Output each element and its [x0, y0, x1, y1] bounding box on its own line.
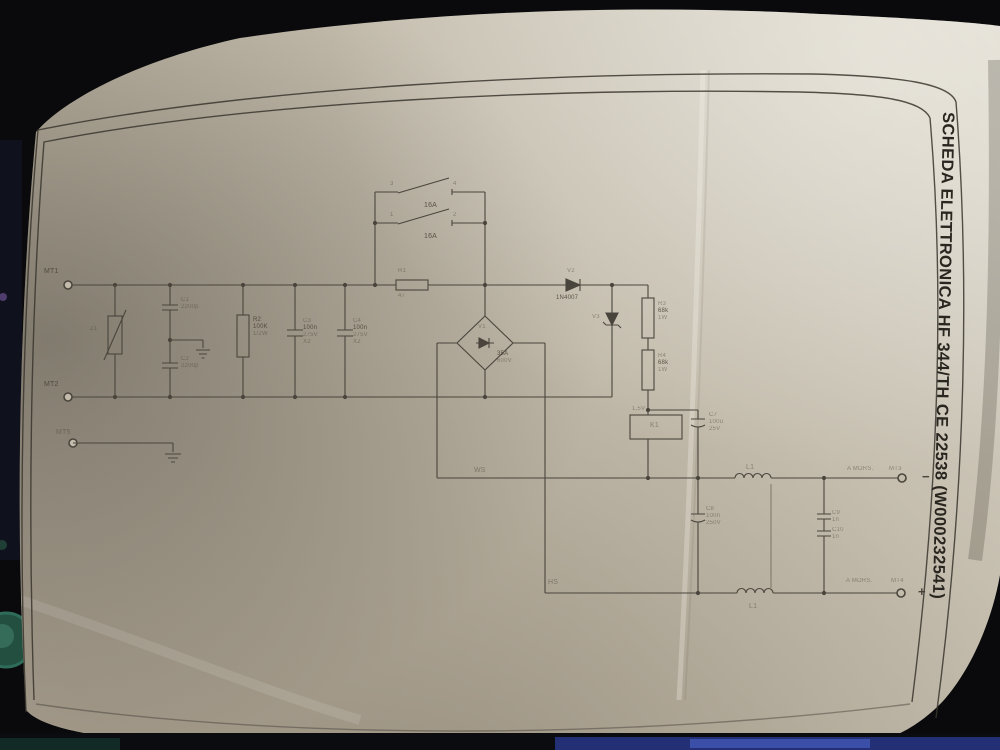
- label-mt5: MT5: [56, 429, 71, 436]
- label-r2: R2: [253, 317, 261, 323]
- teal-strip: [0, 738, 120, 750]
- terminal-mt4: [897, 589, 905, 597]
- label-s1b-contact-1: 1: [390, 212, 394, 218]
- label-c4-voltage: 275V: [353, 332, 368, 338]
- schematic-drawing: [0, 0, 1000, 750]
- label-c2-value: 2200p: [181, 363, 199, 369]
- label-mt2: MT2: [44, 381, 59, 388]
- label-ws: WS: [474, 467, 486, 474]
- paper-shading: [0, 0, 1000, 750]
- terminal-mt1: [64, 281, 72, 289]
- label-l1-top: L1: [746, 464, 754, 471]
- label-c4: C4: [353, 318, 361, 324]
- label-hs: HS: [548, 579, 558, 586]
- label-output-neg-note: A MORS.: [847, 466, 873, 472]
- label-c9: C9: [832, 510, 840, 516]
- label-c8-value: 100n: [706, 513, 720, 519]
- label-c9-value: 1n: [832, 517, 839, 523]
- dark-table-edge: [0, 140, 22, 560]
- label-r2-power: 1/2W: [253, 331, 268, 337]
- label-s1b-rating: 16A: [424, 233, 437, 240]
- label-v3: V3: [592, 314, 600, 320]
- output-plus-sign: +: [918, 585, 926, 598]
- label-output-pos-note: A MORS.: [846, 578, 872, 584]
- label-c1-value: 2200p: [181, 304, 199, 310]
- label-r1: R1: [398, 268, 406, 274]
- label-r2-value: 100K: [253, 324, 268, 330]
- label-r1-value: 47: [398, 293, 405, 299]
- label-output-pos-terminal: MT4: [891, 578, 904, 584]
- label-c10: C10: [832, 527, 844, 533]
- label-z1: Z1: [90, 326, 97, 332]
- label-v1-rating: 35A: [497, 351, 508, 357]
- label-s1a-rating: 16A: [424, 202, 437, 209]
- label-c7: C7: [709, 412, 717, 418]
- label-c3-voltage: 275V: [303, 332, 318, 338]
- output-minus-sign: −: [922, 470, 930, 483]
- label-l1-bottom: L1: [749, 603, 757, 610]
- label-c8: C8: [706, 506, 714, 512]
- label-c4-value: 100n: [353, 325, 367, 331]
- label-c3: C3: [303, 318, 311, 324]
- label-r3-power: 1W: [658, 315, 667, 321]
- blue-strip-light: [690, 739, 870, 748]
- label-v2-part: 1N4007: [556, 295, 578, 301]
- label-c1: C1: [181, 297, 189, 303]
- label-c3-class: X2: [303, 339, 311, 345]
- label-c10-value: 1n: [832, 534, 839, 540]
- label-r4-value: 68k: [658, 360, 668, 366]
- label-r4: R4: [658, 353, 666, 359]
- label-c7-voltage: 25V: [709, 426, 720, 432]
- label-k1-voltage: 1,5V: [632, 406, 645, 412]
- label-r3: R3: [658, 301, 666, 307]
- label-mt1: MT1: [44, 268, 59, 275]
- label-s1a-contact-4: 4: [453, 181, 457, 187]
- label-c3-value: 100n: [303, 325, 317, 331]
- label-k1: K1: [650, 422, 659, 429]
- terminal-mt2: [64, 393, 72, 401]
- label-v2: V2: [567, 268, 575, 274]
- label-c8-voltage: 250V: [706, 520, 721, 526]
- photo-of-schematic-sheet: MT1 MT2 MT5 Z1 C1 2200p C2 2200p R2 100K…: [0, 0, 1000, 750]
- label-v1-voltage: 600V: [497, 358, 512, 364]
- label-r3-value: 68k: [658, 308, 668, 314]
- label-r4-power: 1W: [658, 367, 667, 373]
- label-c4-class: X2: [353, 339, 361, 345]
- label-output-neg-terminal: MT3: [889, 466, 902, 472]
- terminal-mt3: [898, 474, 906, 482]
- label-s1b-contact-2: 2: [453, 212, 457, 218]
- label-c7-value: 100u: [709, 419, 723, 425]
- bottom-edge-objects: [0, 733, 1000, 750]
- label-s1a-contact-3: 3: [390, 181, 394, 187]
- label-v1: V1: [478, 324, 486, 330]
- label-c2: C2: [181, 356, 189, 362]
